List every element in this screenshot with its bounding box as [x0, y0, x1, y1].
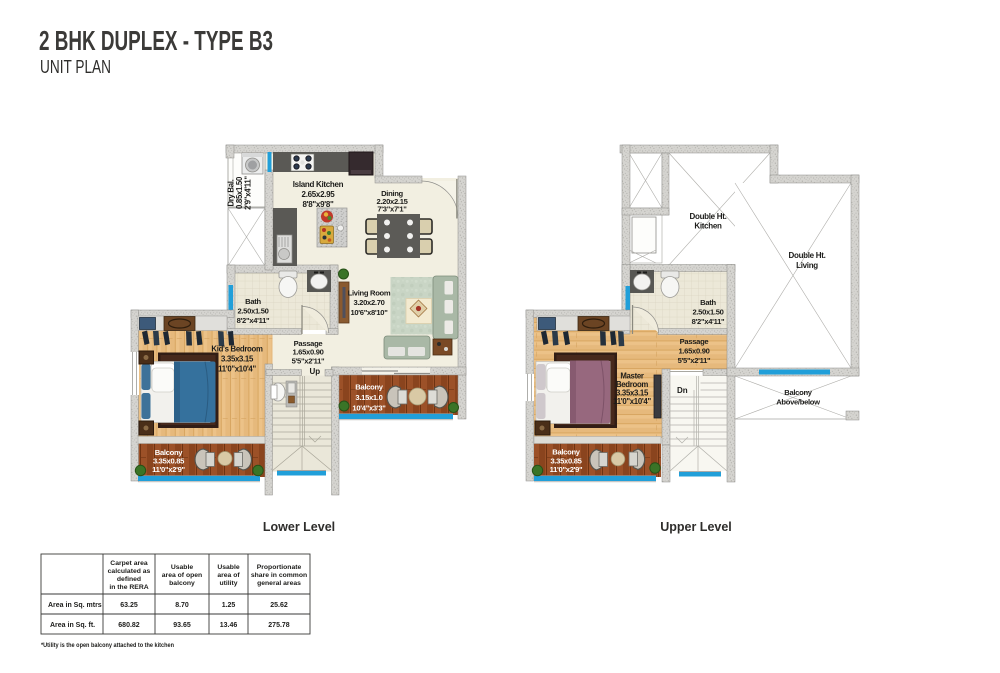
- svg-text:5'5"x2'11": 5'5"x2'11": [678, 356, 711, 365]
- svg-text:defined: defined: [117, 576, 141, 583]
- svg-text:Balcony: Balcony: [784, 388, 813, 397]
- svg-text:8'8"x9'8": 8'8"x9'8": [303, 200, 334, 209]
- svg-text:11'0"x10'4": 11'0"x10'4": [613, 397, 651, 406]
- svg-text:25.62: 25.62: [270, 602, 288, 609]
- svg-text:Area in Sq. ft.: Area in Sq. ft.: [50, 622, 95, 629]
- svg-text:93.65: 93.65: [173, 622, 191, 629]
- svg-text:5'5"x2'11": 5'5"x2'11": [292, 356, 325, 365]
- svg-text:2 BHK DUPLEX - TYPE B3: 2 BHK DUPLEX - TYPE B3: [39, 25, 273, 56]
- svg-text:Living Room: Living Room: [348, 289, 391, 298]
- svg-text:Living: Living: [796, 261, 818, 270]
- svg-text:Carpet area: Carpet area: [110, 560, 148, 567]
- svg-text:area of: area of: [217, 572, 240, 579]
- svg-text:7'3"x7'1": 7'3"x7'1": [377, 204, 407, 213]
- svg-text:share in common: share in common: [251, 572, 307, 579]
- svg-text:275.78: 275.78: [268, 622, 290, 629]
- svg-text:Proportionate: Proportionate: [257, 564, 302, 571]
- svg-text:Up: Up: [310, 367, 321, 376]
- svg-text:Usable: Usable: [171, 564, 194, 571]
- svg-text:Upper Level: Upper Level: [660, 520, 732, 534]
- svg-text:Passage: Passage: [294, 339, 323, 348]
- svg-text:Lower Level: Lower Level: [263, 520, 335, 534]
- svg-text:Balcony: Balcony: [552, 448, 581, 457]
- svg-text:1.65x0.90: 1.65x0.90: [678, 347, 709, 356]
- svg-text:3.35x3.15: 3.35x3.15: [221, 355, 254, 364]
- svg-text:11'0"x2'9": 11'0"x2'9": [550, 465, 583, 474]
- svg-text:10'6"x8'10": 10'6"x8'10": [350, 308, 388, 317]
- svg-text:1.25: 1.25: [222, 602, 236, 609]
- svg-text:11'0"x10'4": 11'0"x10'4": [218, 365, 256, 374]
- svg-text:utility: utility: [219, 580, 237, 587]
- svg-text:8.70: 8.70: [175, 602, 189, 609]
- svg-text:UNIT PLAN: UNIT PLAN: [40, 57, 111, 77]
- svg-text:2.50x1.50: 2.50x1.50: [237, 307, 268, 316]
- svg-text:area of open: area of open: [162, 572, 202, 579]
- svg-text:2'9"x4'11": 2'9"x4'11": [244, 176, 253, 210]
- svg-text:Area in Sq. mtrs: Area in Sq. mtrs: [48, 602, 102, 609]
- svg-text:Balcony: Balcony: [355, 383, 384, 392]
- svg-text:Kid's Bedroom: Kid's Bedroom: [211, 345, 263, 354]
- svg-text:*Utility is the open balcony a: *Utility is the open balcony attached to…: [41, 642, 174, 649]
- svg-text:Balcony: Balcony: [155, 448, 184, 457]
- svg-text:8'2"x4'11": 8'2"x4'11": [692, 317, 725, 326]
- svg-text:Usable: Usable: [217, 564, 240, 571]
- svg-text:Kitchen: Kitchen: [694, 222, 722, 231]
- svg-text:in the RERA: in the RERA: [109, 584, 148, 591]
- svg-text:3.15x1.0: 3.15x1.0: [355, 393, 382, 402]
- svg-text:Double Ht.: Double Ht.: [789, 251, 826, 260]
- svg-text:8'2"x4'11": 8'2"x4'11": [237, 316, 270, 325]
- svg-text:10'4"x3'3": 10'4"x3'3": [352, 404, 386, 413]
- svg-text:11'0"x2'9": 11'0"x2'9": [152, 465, 185, 474]
- svg-text:general areas: general areas: [257, 580, 301, 587]
- svg-text:Above/below: Above/below: [776, 398, 820, 407]
- svg-text:Double Ht.: Double Ht.: [690, 212, 727, 221]
- svg-text:Bath: Bath: [245, 297, 261, 306]
- svg-text:13.46: 13.46: [220, 622, 238, 629]
- svg-text:1.65x0.90: 1.65x0.90: [292, 348, 323, 357]
- svg-text:2.50x1.50: 2.50x1.50: [692, 308, 723, 317]
- svg-text:680.82: 680.82: [118, 622, 140, 629]
- svg-text:63.25: 63.25: [120, 602, 138, 609]
- svg-text:2.65x2.95: 2.65x2.95: [302, 190, 336, 199]
- svg-text:Island Kitchen: Island Kitchen: [293, 180, 344, 189]
- svg-text:Bath: Bath: [700, 298, 716, 307]
- svg-text:Dn: Dn: [677, 386, 688, 395]
- svg-text:calculated as: calculated as: [108, 568, 151, 575]
- svg-text:Passage: Passage: [680, 337, 709, 346]
- svg-text:balcony: balcony: [169, 580, 195, 587]
- svg-text:3.20x2.70: 3.20x2.70: [353, 298, 384, 307]
